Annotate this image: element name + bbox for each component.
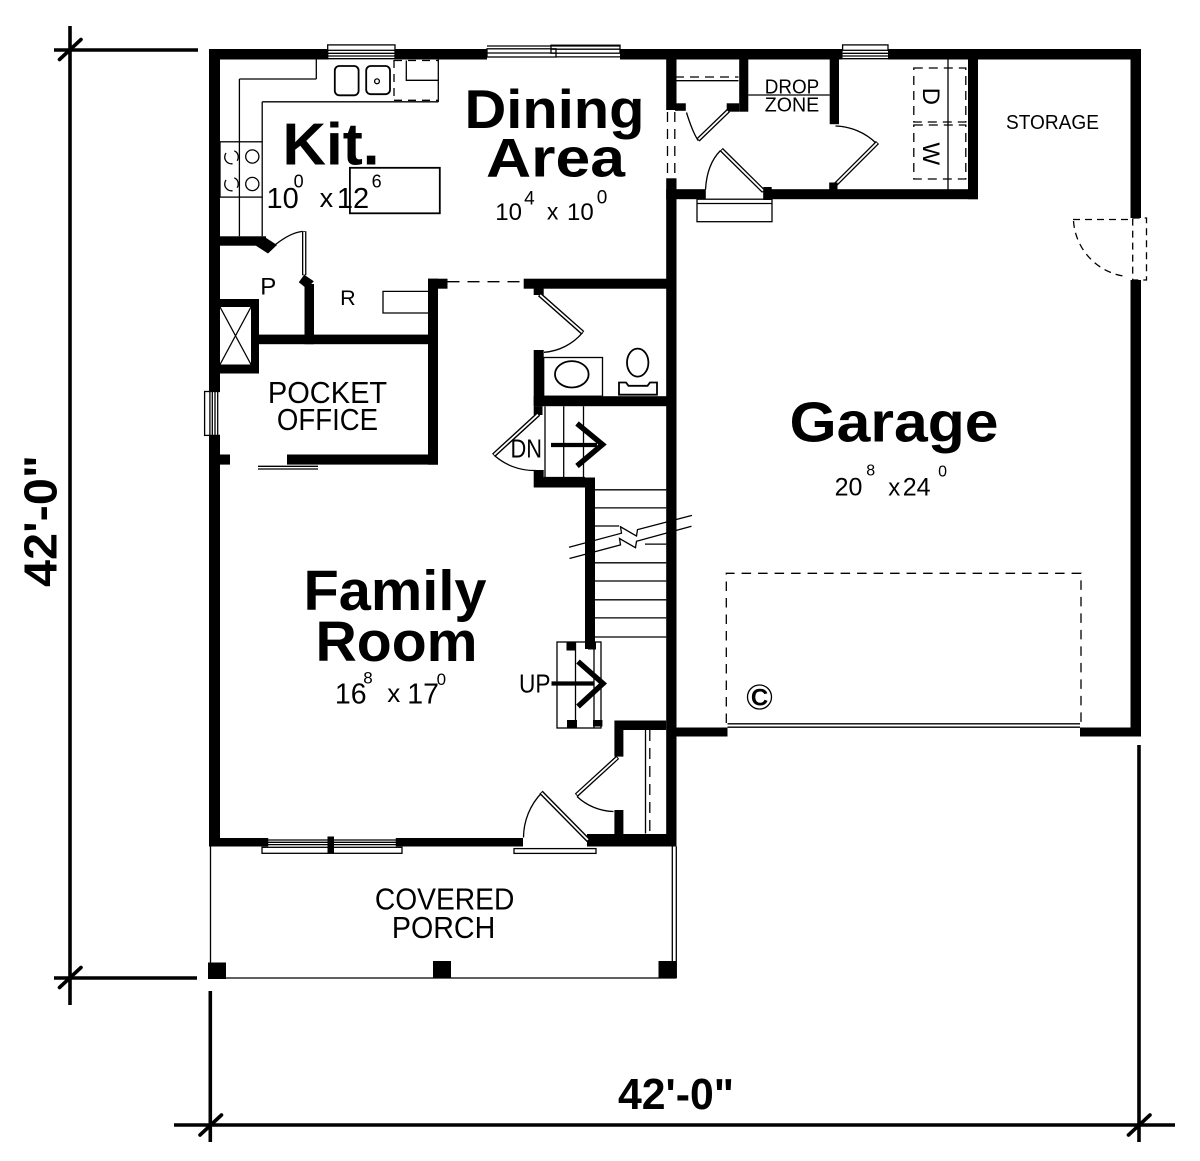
svg-text:6: 6 xyxy=(372,172,382,192)
svg-text:12: 12 xyxy=(337,183,369,215)
svg-text:10: 10 xyxy=(567,199,594,226)
svg-text:W: W xyxy=(917,142,944,165)
svg-text:16: 16 xyxy=(335,679,367,711)
svg-text:4: 4 xyxy=(524,189,535,210)
svg-text:17: 17 xyxy=(407,679,439,711)
svg-text:C: C xyxy=(751,685,768,712)
svg-text:x: x xyxy=(387,678,400,708)
svg-text:Garage: Garage xyxy=(790,391,999,455)
svg-text:x: x xyxy=(888,475,900,502)
svg-text:UP: UP xyxy=(519,669,551,699)
svg-text:DN: DN xyxy=(511,434,543,464)
svg-text:OFFICE: OFFICE xyxy=(277,402,378,437)
svg-text:Area: Area xyxy=(486,127,625,189)
svg-text:Kit.: Kit. xyxy=(283,112,380,178)
svg-text:0: 0 xyxy=(294,172,304,192)
svg-text:20: 20 xyxy=(835,474,863,502)
svg-text:x: x xyxy=(547,199,559,225)
svg-text:42'-0": 42'-0" xyxy=(15,455,67,587)
svg-text:R: R xyxy=(340,286,356,310)
svg-text:x: x xyxy=(320,183,334,213)
svg-text:STORAGE: STORAGE xyxy=(1006,111,1099,134)
svg-text:PORCH: PORCH xyxy=(392,911,495,945)
svg-text:Room: Room xyxy=(316,610,478,674)
svg-text:8: 8 xyxy=(866,463,875,480)
svg-text:0: 0 xyxy=(597,188,608,209)
svg-text:P: P xyxy=(260,273,276,300)
svg-text:24: 24 xyxy=(903,474,931,502)
svg-text:ZONE: ZONE xyxy=(765,94,820,117)
svg-text:8: 8 xyxy=(363,669,372,688)
svg-text:0: 0 xyxy=(938,463,947,480)
svg-text:10: 10 xyxy=(495,199,522,226)
svg-text:0: 0 xyxy=(437,670,446,689)
svg-text:42'-0": 42'-0" xyxy=(618,1070,734,1119)
svg-text:D: D xyxy=(917,88,944,105)
